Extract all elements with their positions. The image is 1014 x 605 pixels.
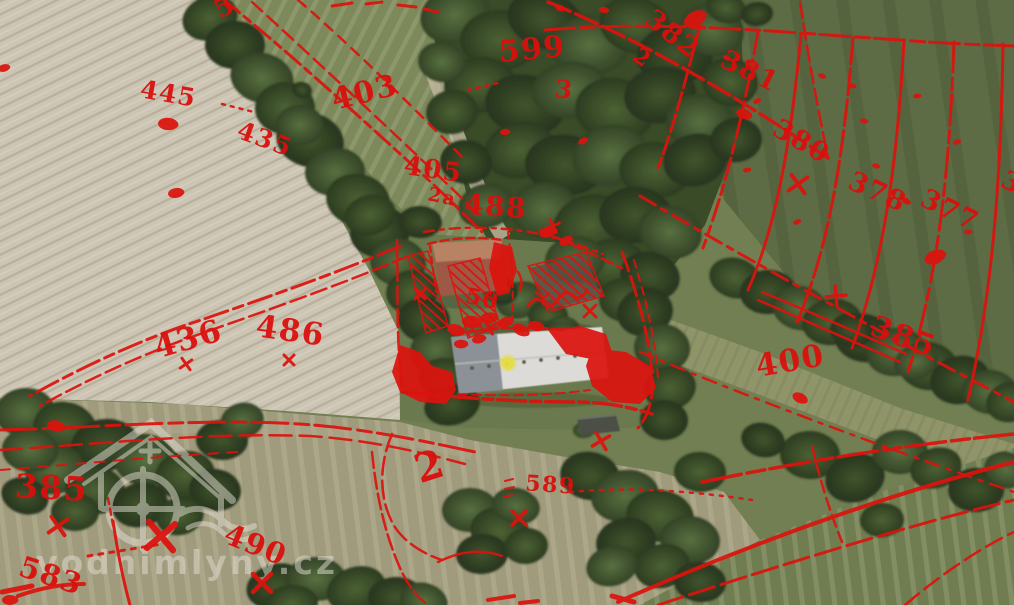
aerial-map-view[interactable]: vodnimlyny.cz	[0, 0, 1014, 605]
grain-overlay-light	[0, 0, 1014, 605]
